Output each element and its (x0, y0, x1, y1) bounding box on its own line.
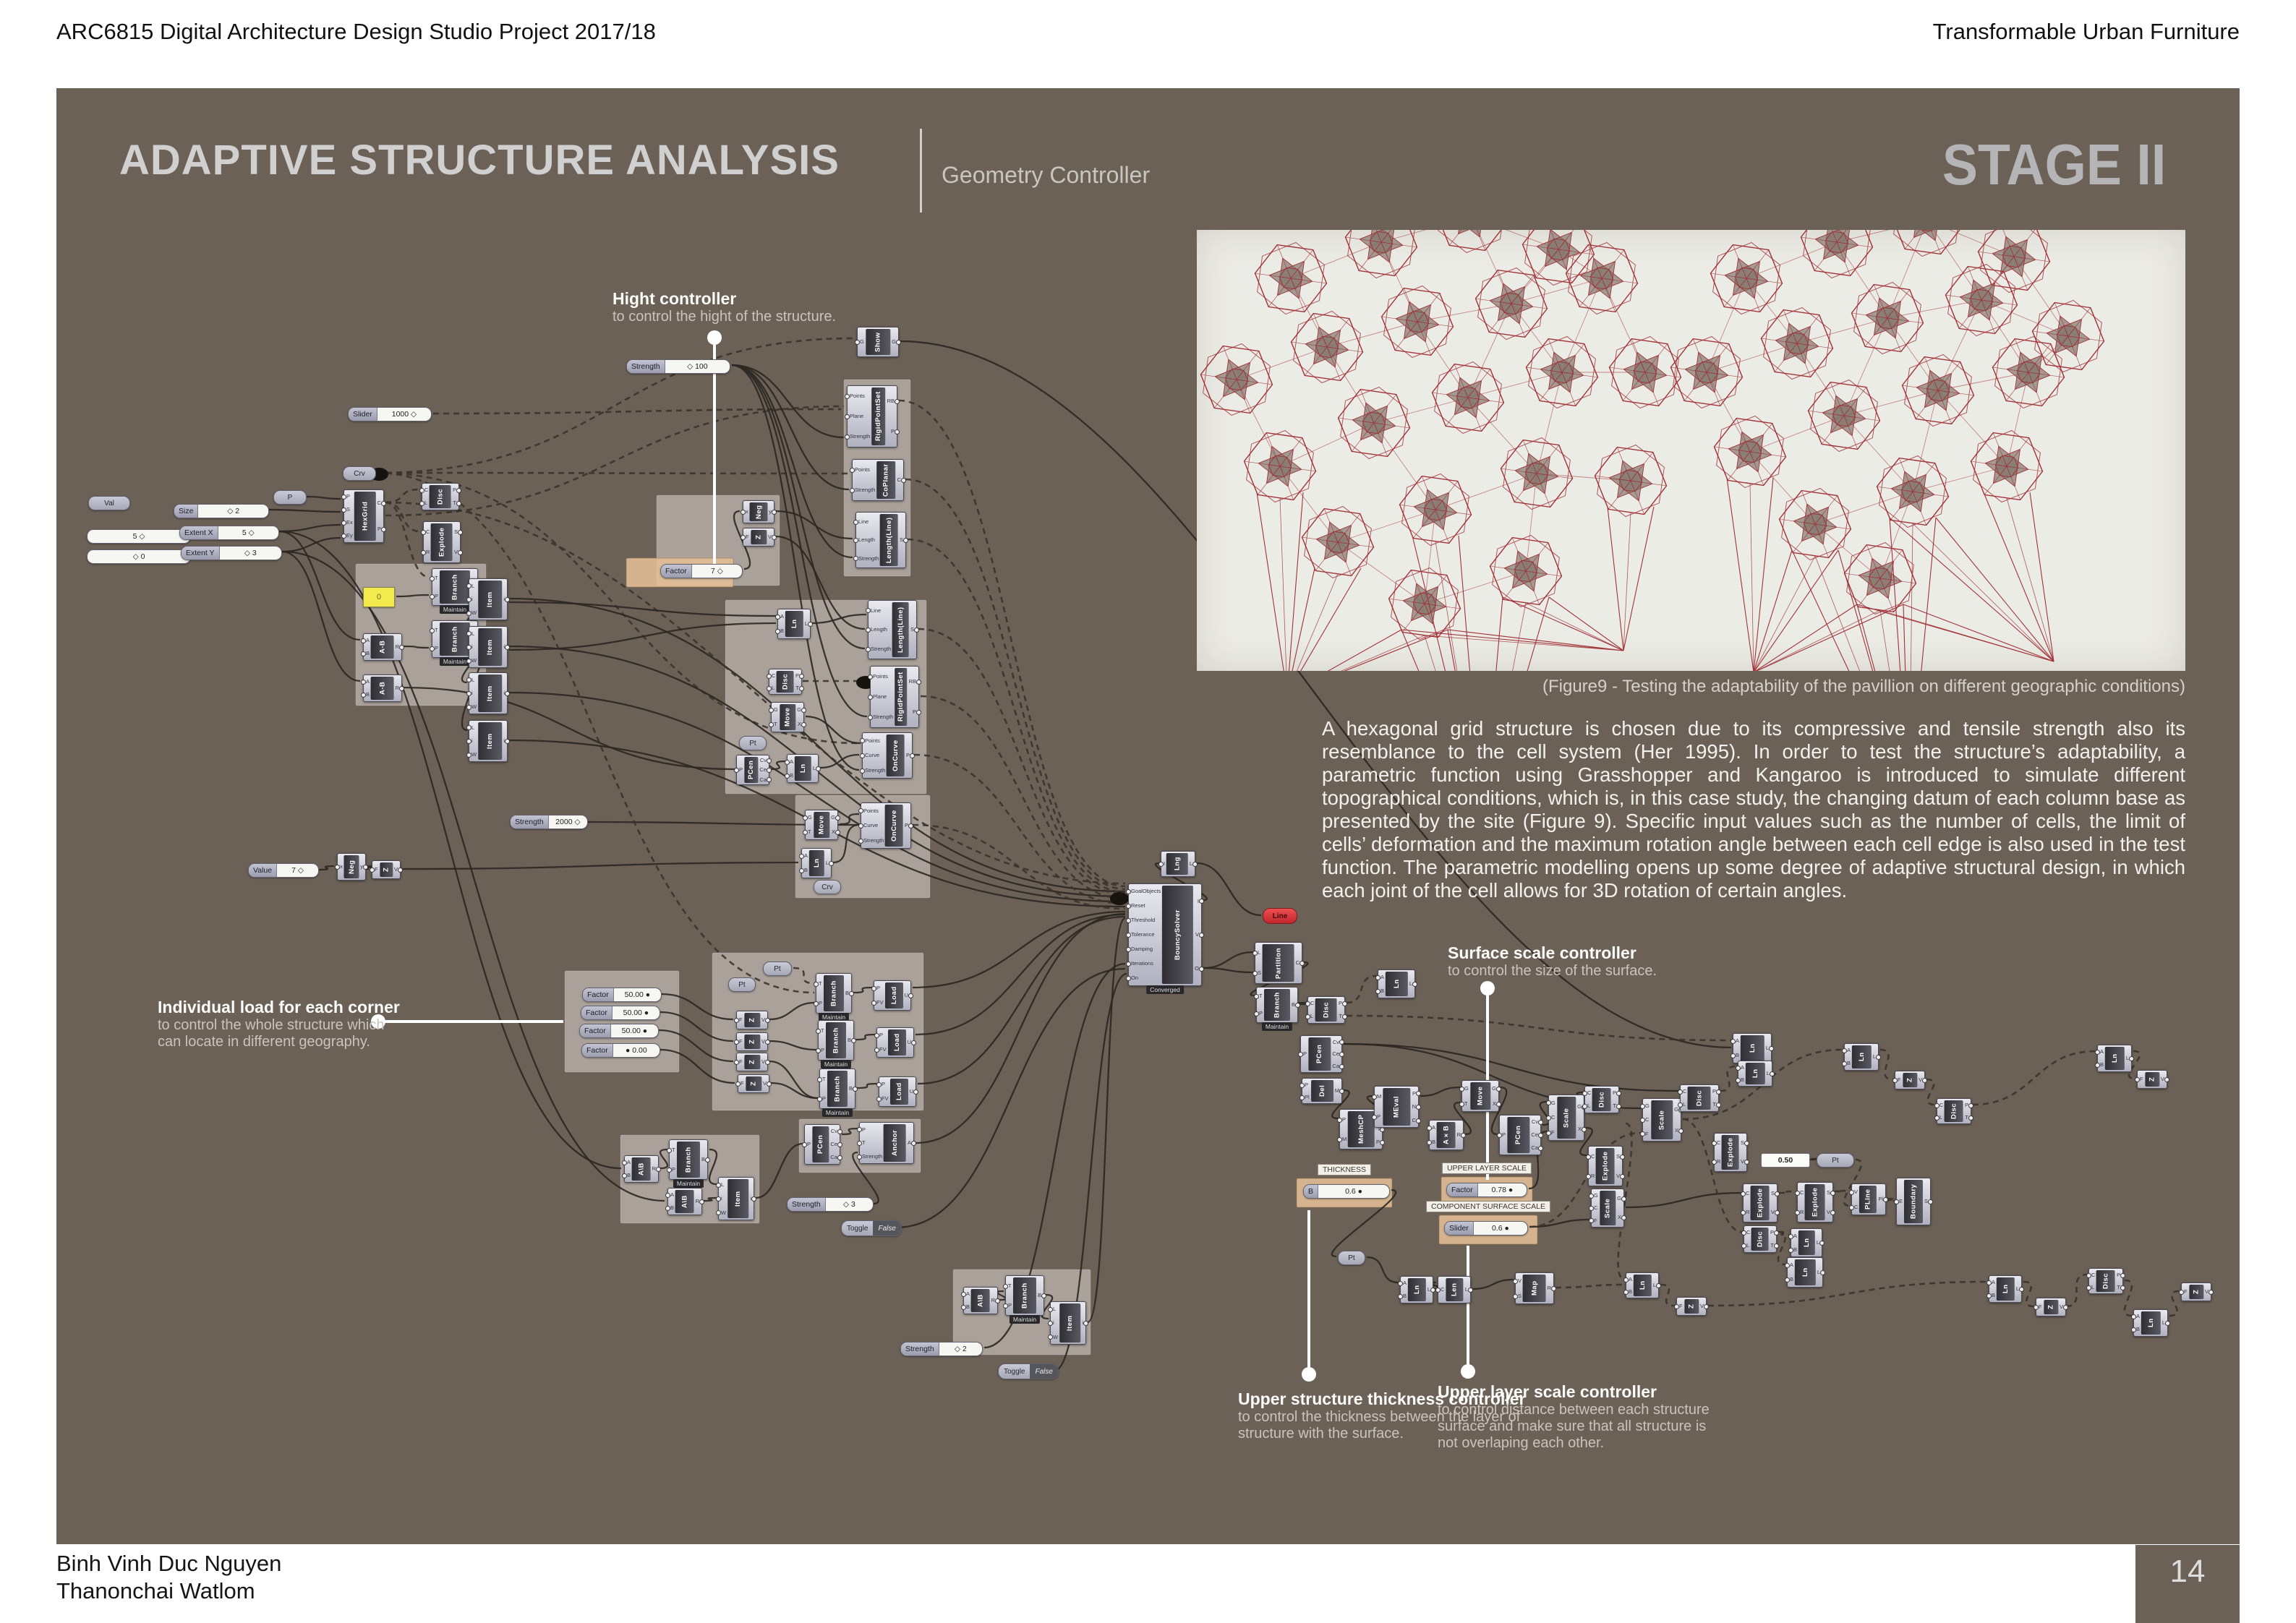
input-port[interactable] (622, 1160, 627, 1165)
input-port[interactable] (2095, 1063, 2100, 1068)
node-del[interactable]: PPlDelM (1302, 1078, 1342, 1104)
slider-factor[interactable]: Factor0.78 ● (1446, 1183, 1527, 1197)
node-a-b[interactable]: ABA-BR (363, 675, 402, 702)
node-load[interactable]: PFVLoadU (876, 1027, 914, 1058)
output-port[interactable] (816, 766, 821, 771)
input-port[interactable] (1640, 1104, 1645, 1109)
node-ln[interactable]: ABLnL (2133, 1309, 2168, 1337)
input-port[interactable] (1788, 1234, 1793, 1239)
output-port[interactable] (381, 527, 386, 532)
input-port[interactable] (1986, 1280, 1992, 1285)
input-port[interactable] (850, 488, 855, 493)
input-port[interactable] (853, 520, 858, 525)
node-oncurve[interactable]: PointsCurveStrengthOnCurveP (861, 802, 911, 849)
input-port[interactable] (335, 865, 340, 870)
output-port[interactable] (1716, 1089, 1721, 1095)
output-port[interactable] (381, 501, 386, 506)
node-neg[interactable]: xNegy (743, 500, 774, 523)
param-pill-pt[interactable]: Pt (739, 736, 767, 750)
input-port[interactable] (667, 1148, 672, 1153)
slider-extent-y[interactable]: Extent Y◇ 3 (181, 546, 282, 560)
output-port[interactable] (1461, 1133, 1466, 1138)
input-port[interactable] (769, 722, 774, 727)
output-port[interactable] (2129, 1056, 2134, 1061)
node-lng[interactable]: ILngL (1161, 851, 1195, 877)
node-a-b[interactable]: ABA×BR (1429, 1120, 1464, 1150)
node-ln[interactable]: ABLnL (1791, 1228, 1822, 1257)
output-port[interactable] (751, 1196, 756, 1202)
node-z[interactable]: FZV (736, 1032, 768, 1051)
output-port[interactable] (1342, 1014, 1347, 1019)
input-port[interactable] (803, 815, 808, 821)
input-port[interactable] (1398, 1294, 1403, 1299)
input-port[interactable] (1736, 1066, 1741, 1071)
output-port[interactable] (913, 1089, 918, 1095)
node-ln[interactable]: ABLnL (1626, 1272, 1659, 1298)
input-port[interactable] (1305, 1001, 1310, 1006)
slider-strength[interactable]: Strength◇ 2 (900, 1342, 983, 1356)
input-port[interactable] (1842, 1048, 1847, 1053)
output-port[interactable] (1928, 1199, 1933, 1204)
output-port[interactable] (1199, 899, 1204, 904)
input-port[interactable] (1252, 971, 1258, 976)
output-port[interactable] (801, 708, 806, 713)
node-item[interactable]: LiWItemi (1050, 1301, 1086, 1345)
output-port[interactable] (1412, 982, 1417, 987)
output-port[interactable] (1295, 1003, 1300, 1008)
input-port[interactable] (1126, 904, 1131, 909)
input-port[interactable] (1497, 1133, 1502, 1138)
input-port[interactable] (1678, 1089, 1683, 1095)
node-show[interactable]: GShowG (857, 327, 899, 357)
node-a-b[interactable]: ABA-BR (363, 633, 402, 661)
output-port[interactable] (1430, 1288, 1435, 1293)
input-port[interactable] (1795, 1210, 1800, 1215)
input-port[interactable] (1582, 1104, 1587, 1109)
node-ln[interactable]: ABLnL (1989, 1275, 2022, 1303)
input-port[interactable] (1730, 1053, 1736, 1058)
input-port[interactable] (866, 647, 871, 652)
output-port[interactable] (765, 1040, 770, 1045)
output-port[interactable] (995, 1298, 1000, 1303)
output-port[interactable] (901, 478, 906, 483)
output-port[interactable] (505, 739, 510, 744)
input-port[interactable] (1849, 1190, 1854, 1195)
output-port[interactable] (505, 691, 510, 696)
input-port[interactable] (741, 535, 746, 540)
node-branch[interactable]: TPBranchBMaintain (819, 1069, 855, 1109)
input-port[interactable] (874, 1033, 879, 1038)
output-port[interactable] (895, 399, 900, 404)
input-port[interactable] (665, 1206, 670, 1211)
input-port[interactable] (466, 597, 471, 602)
input-port[interactable] (1730, 1039, 1736, 1044)
node-ln[interactable]: ABLnL (777, 609, 811, 639)
input-port[interactable] (1003, 1303, 1008, 1309)
node-explode[interactable]: CRExplodeSV (1588, 1146, 1623, 1186)
input-port[interactable] (1892, 1078, 1898, 1083)
slider-strength[interactable]: Strength2000 ◇ (510, 815, 588, 829)
slider-strength[interactable]: Strength◇ 100 (626, 359, 730, 374)
output-port[interactable] (656, 1167, 661, 1172)
node-partition[interactable]: LSPartitionC (1255, 942, 1302, 984)
node-scale[interactable]: GCFScaleGX (1642, 1098, 1681, 1142)
input-port[interactable] (1589, 1206, 1594, 1211)
node-a-b[interactable]: ABA\BR (667, 1188, 702, 1215)
input-port[interactable] (466, 659, 471, 664)
output-port[interactable] (767, 768, 772, 773)
input-port[interactable] (1372, 1115, 1377, 1120)
node-item[interactable]: LiWItemi (718, 1177, 754, 1220)
error-pill-line[interactable]: Line (1263, 908, 1297, 924)
output-port[interactable] (1883, 1197, 1888, 1202)
input-port[interactable] (961, 1292, 966, 1297)
input-port[interactable] (341, 521, 346, 526)
node-bouncysolver[interactable]: GoalObjectsResetThresholdToleranceDampin… (1128, 883, 1202, 986)
output-port[interactable] (2208, 1290, 2214, 1295)
input-port[interactable] (1934, 1103, 1939, 1108)
param-pill-pt[interactable]: Pt (1338, 1251, 1365, 1265)
node-scale[interactable]: GCFScaleGX (1591, 1189, 1624, 1228)
input-port[interactable] (735, 1082, 741, 1087)
slider-slider[interactable]: Slider1000 ◇ (348, 407, 432, 421)
output-port[interactable] (1342, 1001, 1347, 1006)
input-port[interactable] (1337, 1118, 1342, 1123)
node-z[interactable]: FZV (736, 1053, 768, 1071)
node-move[interactable]: GTMoveGX (1461, 1080, 1499, 1112)
node-load[interactable]: PFVLoadU (879, 1076, 916, 1107)
input-port[interactable] (767, 674, 772, 679)
input-port[interactable] (860, 753, 865, 758)
output-port[interactable] (911, 1141, 916, 1146)
input-port[interactable] (1252, 951, 1258, 956)
input-port[interactable] (1785, 1277, 1790, 1282)
input-port[interactable] (814, 1001, 819, 1006)
input-port[interactable] (814, 982, 819, 987)
node-ln[interactable]: ABLnL (801, 848, 832, 878)
slider-slider[interactable]: Slider0.6 ● (1444, 1221, 1528, 1236)
input-port[interactable] (466, 739, 471, 744)
node-z[interactable]: FZV (372, 860, 401, 879)
output-port[interactable] (1769, 1046, 1774, 1051)
input-port[interactable] (871, 986, 876, 991)
output-port[interactable] (851, 1038, 856, 1043)
input-port[interactable] (1158, 862, 1164, 867)
output-port[interactable] (1775, 1210, 1780, 1215)
node-disc[interactable]: CLDiscPT (1744, 1225, 1777, 1253)
input-port[interactable] (1513, 1279, 1518, 1284)
input-port[interactable] (1849, 1205, 1854, 1210)
output-port[interactable] (772, 510, 777, 515)
node-ln[interactable]: ABLnL (2097, 1045, 2132, 1072)
param-pill-pt[interactable]: Pt (728, 977, 756, 992)
input-port[interactable] (741, 510, 746, 515)
output-port[interactable] (829, 861, 834, 866)
input-port[interactable] (1736, 1078, 1741, 1083)
slider-factor[interactable]: Factor● 0.00 (581, 1043, 660, 1058)
output-port[interactable] (2120, 1285, 2125, 1290)
input-port[interactable] (876, 1082, 882, 1087)
output-port[interactable] (799, 674, 804, 679)
output-port[interactable] (1774, 1230, 1779, 1236)
output-port[interactable] (1339, 1052, 1344, 1057)
input-port[interactable] (802, 1142, 807, 1147)
input-port[interactable] (1741, 1191, 1746, 1196)
node-meval[interactable]: MPMEvalPNC (1374, 1086, 1419, 1128)
input-port[interactable] (1126, 976, 1131, 981)
output-port[interactable] (767, 777, 772, 782)
output-port[interactable] (911, 1040, 916, 1045)
input-port[interactable] (361, 680, 366, 685)
param-pill-pt[interactable]: Pt (763, 962, 792, 976)
input-port[interactable] (466, 691, 471, 696)
input-port[interactable] (1842, 1061, 1847, 1066)
output-port[interactable] (1830, 1210, 1835, 1215)
input-port[interactable] (361, 638, 366, 643)
output-port[interactable] (1704, 1304, 1709, 1309)
slider-extent-x[interactable]: Extent X5 ◇ (179, 526, 279, 540)
input-port[interactable] (1435, 1288, 1441, 1293)
input-port[interactable] (961, 1305, 966, 1310)
output-port[interactable] (505, 597, 510, 602)
input-port[interactable] (1785, 1263, 1790, 1268)
node-z[interactable]: FZV (2036, 1298, 2066, 1316)
input-port[interactable] (1298, 1052, 1303, 1057)
output-port[interactable] (1299, 961, 1305, 966)
input-port[interactable] (1586, 1174, 1591, 1179)
node-disc[interactable]: CLDiscPT (1937, 1098, 1971, 1124)
value-box[interactable]: 0.50 (1761, 1153, 1810, 1168)
output-port[interactable] (1968, 1115, 1973, 1121)
output-port[interactable] (916, 710, 921, 715)
input-port[interactable] (2131, 1327, 2136, 1332)
output-port[interactable] (849, 991, 854, 996)
input-port[interactable] (734, 768, 739, 773)
input-port[interactable] (361, 693, 366, 698)
node-branch[interactable]: TPBranchBMaintain (669, 1139, 708, 1180)
input-port[interactable] (845, 434, 850, 440)
node-branch[interactable]: TPBranchBMaintain (1005, 1275, 1044, 1316)
output-port[interactable] (765, 1018, 770, 1023)
output-port[interactable] (895, 429, 900, 434)
input-port[interactable] (419, 488, 424, 493)
output-port[interactable] (837, 1155, 842, 1160)
slider-unnamed[interactable]: 5 ◇ (87, 529, 191, 544)
output-port[interactable] (458, 530, 463, 535)
node-item[interactable]: LiWItemi (469, 672, 508, 714)
output-port[interactable] (505, 645, 510, 650)
input-port[interactable] (1003, 1284, 1008, 1289)
node-z[interactable]: FZV (736, 1011, 768, 1029)
node-coplanar[interactable]: PointsStrengthCoPlanarC (852, 459, 904, 501)
node-item[interactable]: LiWItemi (469, 626, 508, 668)
toggle-toggle[interactable]: ToggleFalse (841, 1220, 902, 1236)
input-port[interactable] (816, 1029, 821, 1034)
output-port[interactable] (2164, 1077, 2169, 1082)
input-port[interactable] (1459, 1102, 1464, 1107)
input-port[interactable] (1674, 1304, 1679, 1309)
output-port[interactable] (837, 1129, 842, 1134)
node-length-line-[interactable]: LineLengthStrengthLength(Line)S (868, 600, 917, 659)
output-port[interactable] (399, 686, 404, 691)
node-rigidpointset[interactable]: PointsPlaneStrengthRigidPointSetRBP (847, 385, 897, 447)
output-port[interactable] (908, 823, 913, 828)
output-port[interactable] (1339, 1089, 1344, 1094)
param-pill-pt[interactable]: Pt (1817, 1153, 1854, 1168)
input-port[interactable] (2095, 1050, 2100, 1055)
node-explode[interactable]: CRExplodeSV (423, 521, 461, 563)
output-port[interactable] (808, 622, 813, 627)
output-port[interactable] (903, 538, 908, 543)
node-ln[interactable]: ABLnL (1738, 1061, 1772, 1087)
input-port[interactable] (1126, 947, 1131, 952)
input-port[interactable] (775, 629, 780, 634)
input-port[interactable] (1398, 1281, 1403, 1286)
node-move[interactable]: GTMoveGX (771, 702, 804, 732)
input-port[interactable] (1788, 1248, 1793, 1253)
input-port[interactable] (1986, 1293, 1992, 1298)
input-port[interactable] (1048, 1307, 1053, 1312)
input-port[interactable] (1048, 1321, 1053, 1326)
output-port[interactable] (799, 686, 804, 691)
node-disc[interactable]: CLDiscPT (422, 483, 459, 510)
input-port[interactable] (1375, 975, 1380, 980)
output-port[interactable] (765, 1060, 770, 1065)
input-port[interactable] (799, 854, 804, 859)
input-port[interactable] (769, 708, 774, 713)
param-pill-val[interactable]: Val (88, 496, 130, 510)
input-port[interactable] (430, 576, 435, 581)
input-port[interactable] (341, 534, 346, 539)
input-port[interactable] (430, 594, 435, 599)
node-pcen[interactable]: PPCenCvCeCa (804, 1124, 840, 1165)
input-port[interactable] (667, 1168, 672, 1173)
node-z[interactable]: FZV (1676, 1297, 1707, 1316)
slider-factor[interactable]: Factor50.00 ● (581, 1006, 660, 1020)
input-port[interactable] (1299, 1095, 1305, 1100)
input-port[interactable] (1589, 1194, 1594, 1199)
input-port[interactable] (1126, 933, 1131, 938)
input-port[interactable] (1299, 1083, 1305, 1088)
output-port[interactable] (705, 1157, 710, 1162)
input-port[interactable] (1712, 1160, 1717, 1165)
input-port[interactable] (1126, 962, 1131, 967)
input-port[interactable] (419, 501, 424, 506)
input-port[interactable] (466, 753, 471, 758)
node-branch[interactable]: TPBranchBMaintain (818, 1020, 854, 1061)
input-port[interactable] (860, 768, 865, 774)
node-boundary[interactable]: EBoundaryS (1896, 1178, 1931, 1225)
output-port[interactable] (772, 535, 777, 540)
output-port[interactable] (801, 722, 806, 727)
output-port[interactable] (399, 645, 404, 650)
output-port[interactable] (1199, 967, 1204, 972)
output-port[interactable] (767, 1082, 772, 1087)
input-port[interactable] (785, 774, 790, 779)
output-port[interactable] (1716, 1102, 1721, 1108)
input-port[interactable] (1126, 889, 1131, 894)
node-disc[interactable]: CLDiscPT (1584, 1086, 1619, 1113)
node-disc[interactable]: CLDiscPT (1307, 996, 1345, 1024)
output-port[interactable] (699, 1199, 704, 1204)
output-port[interactable] (896, 340, 901, 345)
output-port[interactable] (2120, 1273, 2125, 1278)
node-explode[interactable]: CRExplodeSV (1743, 1183, 1778, 1222)
output-port[interactable] (456, 488, 461, 493)
input-port[interactable] (341, 494, 346, 500)
input-port[interactable] (734, 1040, 739, 1045)
node-scale[interactable]: GCFScaleGX (1548, 1095, 1584, 1141)
output-port[interactable] (1041, 1293, 1046, 1298)
node-map[interactable]: VSMapR (1515, 1272, 1554, 1304)
input-port[interactable] (1712, 1141, 1717, 1146)
node-ln[interactable]: ABLnL (1844, 1043, 1879, 1071)
output-port[interactable] (1416, 1091, 1421, 1096)
input-port[interactable] (799, 868, 804, 873)
node-z[interactable]: FZV (2137, 1070, 2167, 1089)
output-port[interactable] (398, 868, 403, 873)
input-port[interactable] (1427, 1126, 1432, 1131)
input-port[interactable] (466, 645, 471, 650)
output-port[interactable] (1621, 1215, 1626, 1220)
slider-factor[interactable]: Factor50.00 ● (579, 1024, 659, 1038)
output-port[interactable] (1538, 1120, 1543, 1125)
input-port[interactable] (1741, 1230, 1746, 1236)
node-neg[interactable]: xNegy (337, 853, 366, 881)
input-port[interactable] (1640, 1118, 1645, 1123)
output-port[interactable] (1582, 1127, 1587, 1132)
output-port[interactable] (1380, 1140, 1385, 1145)
output-port[interactable] (1339, 1040, 1344, 1045)
input-port[interactable] (845, 414, 850, 419)
output-port[interactable] (914, 628, 919, 633)
slider-factor[interactable]: Factor50.00 ● (582, 988, 662, 1002)
node-rigidpointset[interactable]: PointsPlaneStrengthRigidPointSetRBP (870, 666, 919, 728)
input-port[interactable] (1934, 1115, 1939, 1121)
output-port[interactable] (916, 680, 921, 685)
input-port[interactable] (1795, 1191, 1800, 1196)
output-port[interactable] (1551, 1286, 1556, 1291)
input-port[interactable] (1427, 1140, 1432, 1145)
input-port[interactable] (716, 1196, 721, 1202)
node-z[interactable]: FZV (738, 1074, 769, 1093)
node-disc[interactable]: CLDiscPT (769, 669, 802, 695)
output-port[interactable] (908, 993, 913, 998)
node-load[interactable]: PFVLoadU (874, 980, 911, 1011)
node-z[interactable]: FZV (1895, 1071, 1925, 1089)
input-port[interactable] (2179, 1290, 2184, 1295)
slider-b[interactable]: B0.6 ● (1303, 1184, 1390, 1199)
node-pcen[interactable]: PPCenCvCeCa (736, 755, 769, 785)
node-ln[interactable]: ABLnL (1378, 969, 1415, 998)
input-port[interactable] (855, 340, 860, 345)
output-port[interactable] (1744, 1141, 1749, 1146)
input-port[interactable] (1372, 1095, 1377, 1100)
output-port[interactable] (1538, 1146, 1543, 1151)
output-port[interactable] (837, 1142, 842, 1147)
input-port[interactable] (361, 651, 366, 656)
output-port[interactable] (1616, 1091, 1621, 1096)
input-port[interactable] (858, 839, 863, 844)
input-port[interactable] (1337, 1137, 1342, 1142)
input-port[interactable] (1546, 1115, 1551, 1121)
output-port[interactable] (2063, 1305, 2068, 1310)
slider-unnamed[interactable]: ◇ 0 (87, 549, 191, 564)
node-explode[interactable]: CRExplodeSV (1797, 1182, 1833, 1222)
output-port[interactable] (1620, 1155, 1625, 1160)
input-port[interactable] (734, 1060, 739, 1065)
node-pcen[interactable]: PPCenCvCeCa (1499, 1115, 1541, 1155)
